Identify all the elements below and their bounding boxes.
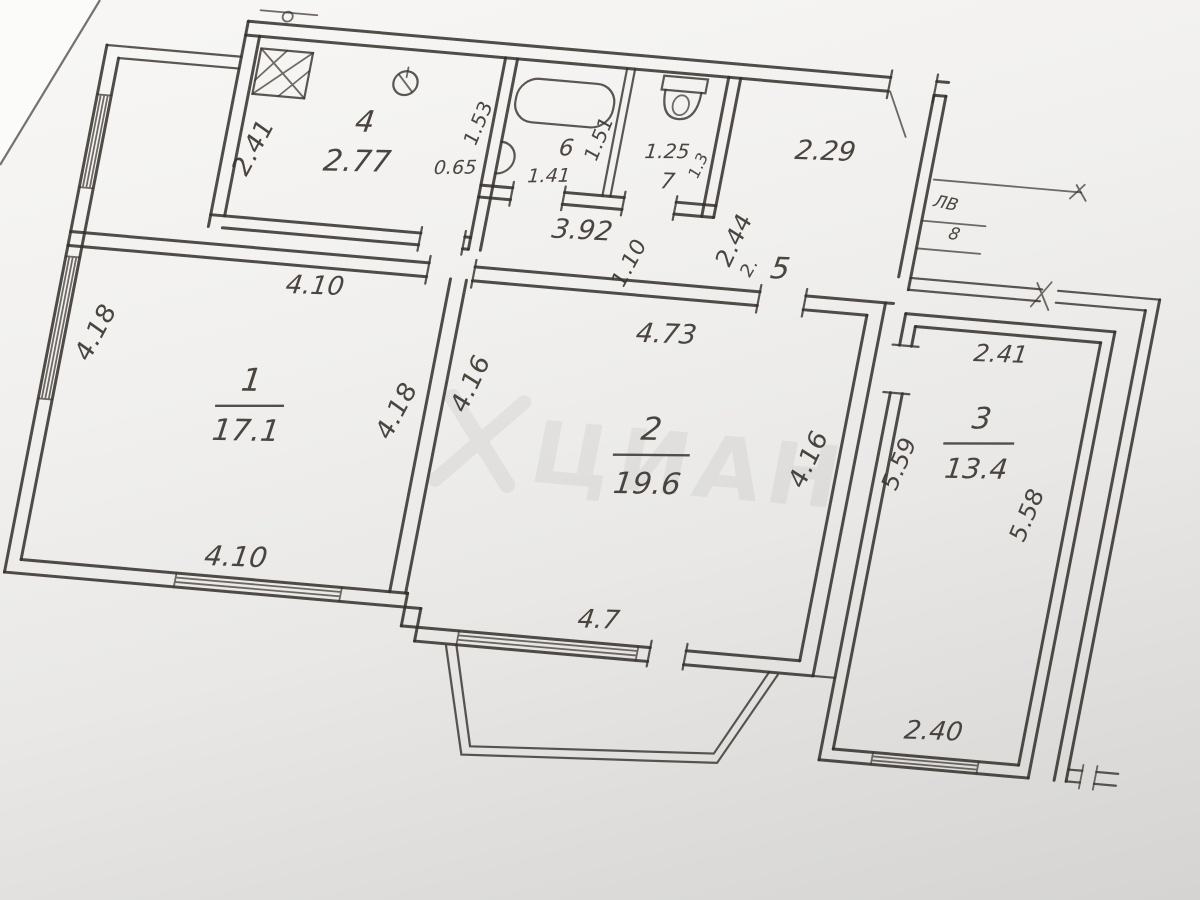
window-bottom-room1 [174, 573, 342, 601]
kitchen-dim-left: 2.41 [226, 115, 281, 179]
room1-number-label: 1 [239, 361, 264, 399]
floor-plan-svg: ЦИАН [0, 0, 1200, 900]
kitchen-door-jambs [417, 227, 465, 255]
hall-number-label: 5 [768, 251, 792, 286]
watermark-x-stroke [436, 396, 524, 485]
bath-value-label: 1.41 [527, 165, 572, 187]
wall-break-mark [1030, 281, 1053, 310]
room1-dim-left: 4.18 [69, 300, 124, 364]
kitchen-number-label: 4 [353, 105, 377, 140]
room1-dim-bottom: 4.10 [202, 539, 269, 574]
hall-note-label: 2. [736, 256, 763, 280]
kitchen-sink-icon [391, 66, 420, 96]
kitchen-vent-hatch-icon [252, 48, 313, 98]
bath-number-label: 6 [558, 136, 575, 162]
room2-area-label: 19.6 [611, 466, 683, 502]
room3-fraction-bar [943, 437, 1014, 449]
balcony-outline [426, 644, 779, 781]
plan-tilt: ЦИАН [0, 0, 1200, 811]
room3-dim-bottom: 2.40 [902, 716, 964, 748]
stairwell-label: ЛВ [930, 192, 961, 216]
room2-dim-bottom: 4.7 [576, 605, 622, 636]
room3-dim-right: 5.58 [1003, 486, 1050, 545]
window-left-room1 [38, 256, 80, 399]
toilet-icon [656, 76, 708, 121]
room2-dim-left: 4.16 [444, 352, 497, 416]
room2-dim-top: 4.73 [634, 318, 699, 351]
corridor-dim-length: 3.92 [550, 214, 615, 248]
room1-area-label: 17.1 [210, 413, 282, 449]
room3-door-jambs [883, 345, 918, 395]
hall-dim-top: 2.29 [793, 135, 858, 168]
bath-dim-door: 0.65 [433, 157, 478, 179]
room3-number-label: 3 [970, 402, 993, 437]
plan-tilt-outer: ЦИАН [0, 0, 1200, 811]
balcony-door-jambs [647, 641, 688, 670]
kitchen-value-label: 2.77 [321, 144, 393, 180]
scanned-floor-plan-photo: ЦИАН [0, 0, 1200, 900]
room3-dim-left: 5.59 [875, 435, 922, 494]
stairwell-number: 8 [946, 224, 963, 245]
room1-dim-top: 4.10 [284, 270, 346, 302]
stairwell-lines [916, 171, 1088, 262]
room3-area-label: 13.4 [943, 452, 1010, 486]
room1-fraction-bar [215, 400, 284, 412]
wc-value-label: 1.25 [643, 139, 690, 163]
bath-wc-door-jambs [509, 182, 677, 220]
wc-number-label: 7 [659, 169, 677, 194]
room1-dim-right: 4.18 [369, 379, 424, 443]
room3-dim-top: 2.41 [972, 339, 1030, 369]
